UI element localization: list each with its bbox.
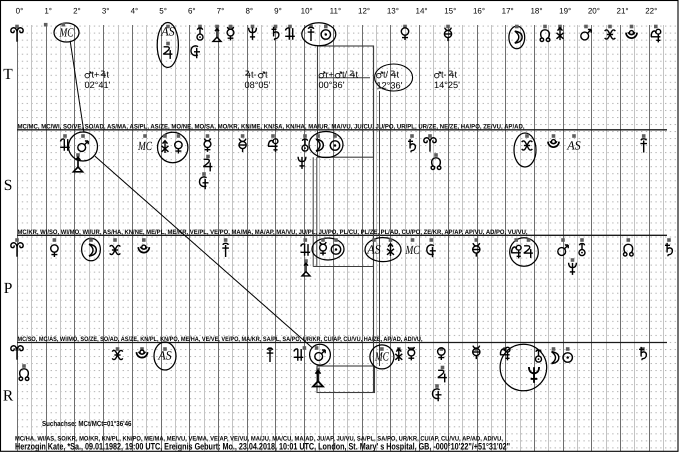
svg-text:T: T bbox=[3, 66, 13, 83]
svg-text:10°: 10° bbox=[301, 7, 313, 16]
svg-text:t: t bbox=[265, 69, 268, 79]
svg-text:02°41': 02°41' bbox=[85, 80, 111, 90]
svg-text:t: t bbox=[107, 69, 110, 79]
svg-text:1°: 1° bbox=[44, 7, 52, 16]
svg-text:AS: AS bbox=[160, 25, 175, 39]
svg-text:6°: 6° bbox=[188, 7, 196, 16]
svg-text:MC: MC bbox=[59, 26, 74, 40]
svg-text:MC: MC bbox=[405, 243, 420, 257]
svg-text:16°: 16° bbox=[473, 7, 485, 16]
svg-text:17°: 17° bbox=[502, 7, 514, 16]
svg-text:12°36': 12°36' bbox=[377, 80, 403, 90]
svg-text:MC/SO, MC/AS, WI/MO, SO/ZE, SO: MC/SO, MC/AS, WI/MO, SO/ZE, SO/AD, AS/ZE… bbox=[18, 336, 423, 343]
svg-text:t: t bbox=[455, 69, 458, 79]
svg-text:t+: t+ bbox=[92, 69, 100, 79]
svg-text:14°25': 14°25' bbox=[434, 80, 460, 90]
svg-text:5°: 5° bbox=[159, 7, 167, 16]
svg-text:P: P bbox=[4, 280, 13, 297]
svg-text:MC/KR, WI/SO, WI/MO, WI/UR, AS: MC/KR, WI/SO, WI/MO, WI/UR, AS/HA, KN/NE… bbox=[18, 229, 528, 236]
svg-text:3°: 3° bbox=[102, 7, 110, 16]
svg-text:08°05': 08°05' bbox=[245, 80, 271, 90]
svg-text:4°: 4° bbox=[131, 7, 139, 16]
svg-text:22°: 22° bbox=[645, 7, 657, 16]
svg-text:AS: AS bbox=[157, 349, 172, 363]
svg-text:MC: MC bbox=[374, 350, 389, 364]
svg-text:7°: 7° bbox=[217, 7, 225, 16]
svg-text:Suchachse: MCt/MCt=01°36'46: Suchachse: MCt/MCt=01°36'46 bbox=[42, 419, 132, 428]
svg-text:15°: 15° bbox=[444, 7, 456, 16]
svg-text:00°36': 00°36' bbox=[319, 80, 345, 90]
svg-text:R: R bbox=[3, 388, 14, 405]
svg-text:2°: 2° bbox=[73, 7, 81, 16]
svg-text:t-: t- bbox=[251, 69, 257, 79]
svg-text:AS: AS bbox=[566, 139, 581, 153]
svg-text:8°: 8° bbox=[245, 7, 253, 16]
svg-text:21°: 21° bbox=[617, 7, 629, 16]
svg-text:9°: 9° bbox=[274, 7, 282, 16]
svg-text:11°: 11° bbox=[330, 7, 342, 16]
svg-text:t/: t/ bbox=[383, 69, 389, 79]
svg-text:14°: 14° bbox=[416, 7, 428, 16]
svg-text:MC: MC bbox=[137, 139, 152, 153]
svg-text:MC/MC, MC/WI, SO/VE, SO/AD, AS: MC/MC, MC/WI, SO/VE, SO/AD, AS/MA, AS/PL… bbox=[18, 124, 525, 131]
svg-text:t: t bbox=[356, 69, 359, 79]
svg-text:19°: 19° bbox=[559, 7, 571, 16]
svg-text:18°: 18° bbox=[530, 7, 542, 16]
svg-text:12°: 12° bbox=[358, 7, 370, 16]
svg-text:13°: 13° bbox=[387, 7, 399, 16]
svg-text:Herzogin Kate, *Sa., 09.01.198: Herzogin Kate, *Sa., 09.01.1982, 19:00 U… bbox=[15, 441, 510, 452]
svg-text:S: S bbox=[4, 177, 13, 194]
svg-text:AS: AS bbox=[366, 243, 381, 257]
svg-text:20°: 20° bbox=[588, 7, 600, 16]
svg-text:0°: 0° bbox=[16, 7, 24, 16]
svg-text:t: t bbox=[397, 69, 400, 79]
svg-text:r+: r+ bbox=[326, 69, 334, 79]
svg-text:t-: t- bbox=[441, 69, 447, 79]
svg-text:t/: t/ bbox=[342, 69, 348, 79]
